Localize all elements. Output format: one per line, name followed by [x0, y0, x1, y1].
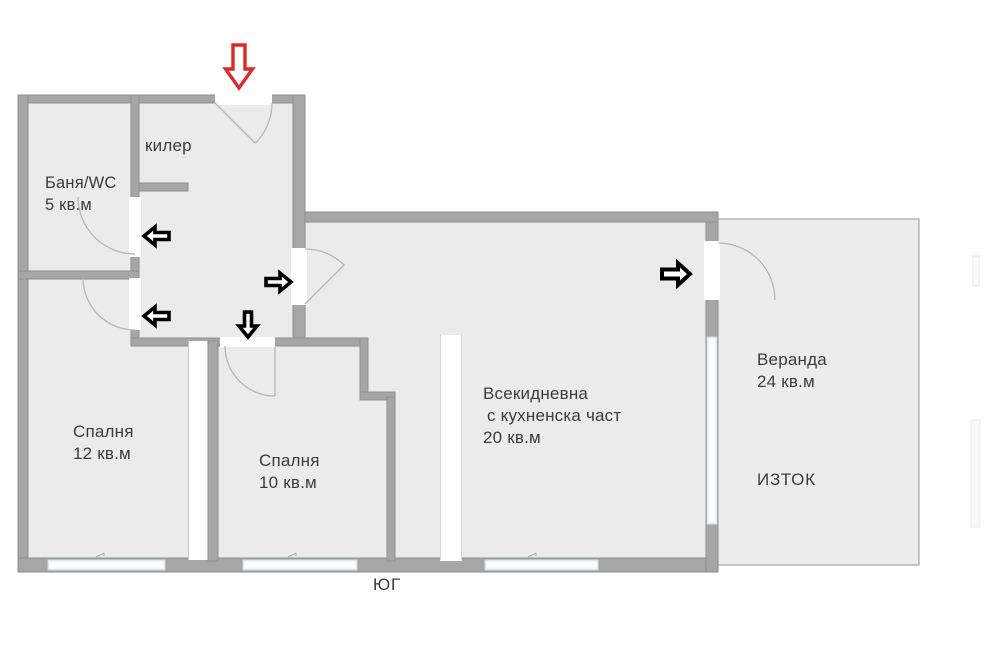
page-artifact [971, 420, 980, 527]
wall-hall-right [293, 95, 305, 346]
window-glass [710, 339, 715, 523]
opening-bedroom12 [129, 278, 141, 330]
room-name: Спалня [259, 450, 320, 472]
window-glass [245, 563, 356, 568]
wall-living-top [293, 212, 718, 222]
window-glass [487, 563, 597, 568]
entrance-arrow-icon [226, 45, 253, 88]
room-name: Спалня [73, 421, 134, 443]
room-area: 10 кв.м [259, 472, 320, 494]
bedroom-divider-niche [188, 341, 208, 560]
wall-bedroom-divider [208, 341, 218, 561]
label-pantry: килер [145, 135, 192, 157]
compass-south-label: ЮГ [373, 574, 401, 596]
wall-bedroom10-lower [387, 397, 395, 561]
label-bedroom-10: Спалня 10 кв.м [259, 450, 320, 494]
room-fills [18, 95, 919, 572]
wall-bath-bottom [18, 271, 139, 279]
label-veranda: Веранда 24 кв.м [757, 349, 827, 393]
room-name: килер [145, 135, 192, 157]
wall-bedroom10-upper [360, 338, 368, 397]
opening-veranda [704, 241, 720, 300]
window-glass [50, 563, 164, 568]
page-artifacts [971, 256, 980, 527]
room-name: Всекидневна [483, 383, 621, 405]
room-west-block [18, 95, 305, 572]
room-name-line2: с кухненска част [483, 405, 621, 427]
room-area: 5 кв.м [45, 194, 117, 216]
room-name: Веранда [757, 349, 827, 371]
compass-east-label: ИЗТОК [757, 469, 816, 491]
living-shaft [440, 335, 462, 561]
room-area: 12 кв.м [73, 443, 134, 465]
floor-plan: килер Баня/WC 5 кв.м Спалня 12 кв.м Спал… [0, 0, 1000, 646]
room-area: 20 кв.м [483, 427, 621, 449]
floor-plan-drawing [0, 0, 1000, 646]
page-artifact [973, 256, 979, 286]
opening-entrance [215, 93, 272, 105]
wall-left [18, 95, 28, 572]
opening-hall-living [291, 248, 307, 305]
room-area: 24 кв.м [757, 371, 827, 393]
opening-bathroom [129, 197, 141, 257]
label-bedroom-12: Спалня 12 кв.м [73, 421, 134, 465]
wall-pantry-stub [139, 183, 188, 191]
label-living: Всекидневна с кухненска част 20 кв.м [483, 383, 621, 449]
label-bathroom: Баня/WC 5 кв.м [45, 172, 117, 216]
room-name: Баня/WC [45, 172, 117, 194]
